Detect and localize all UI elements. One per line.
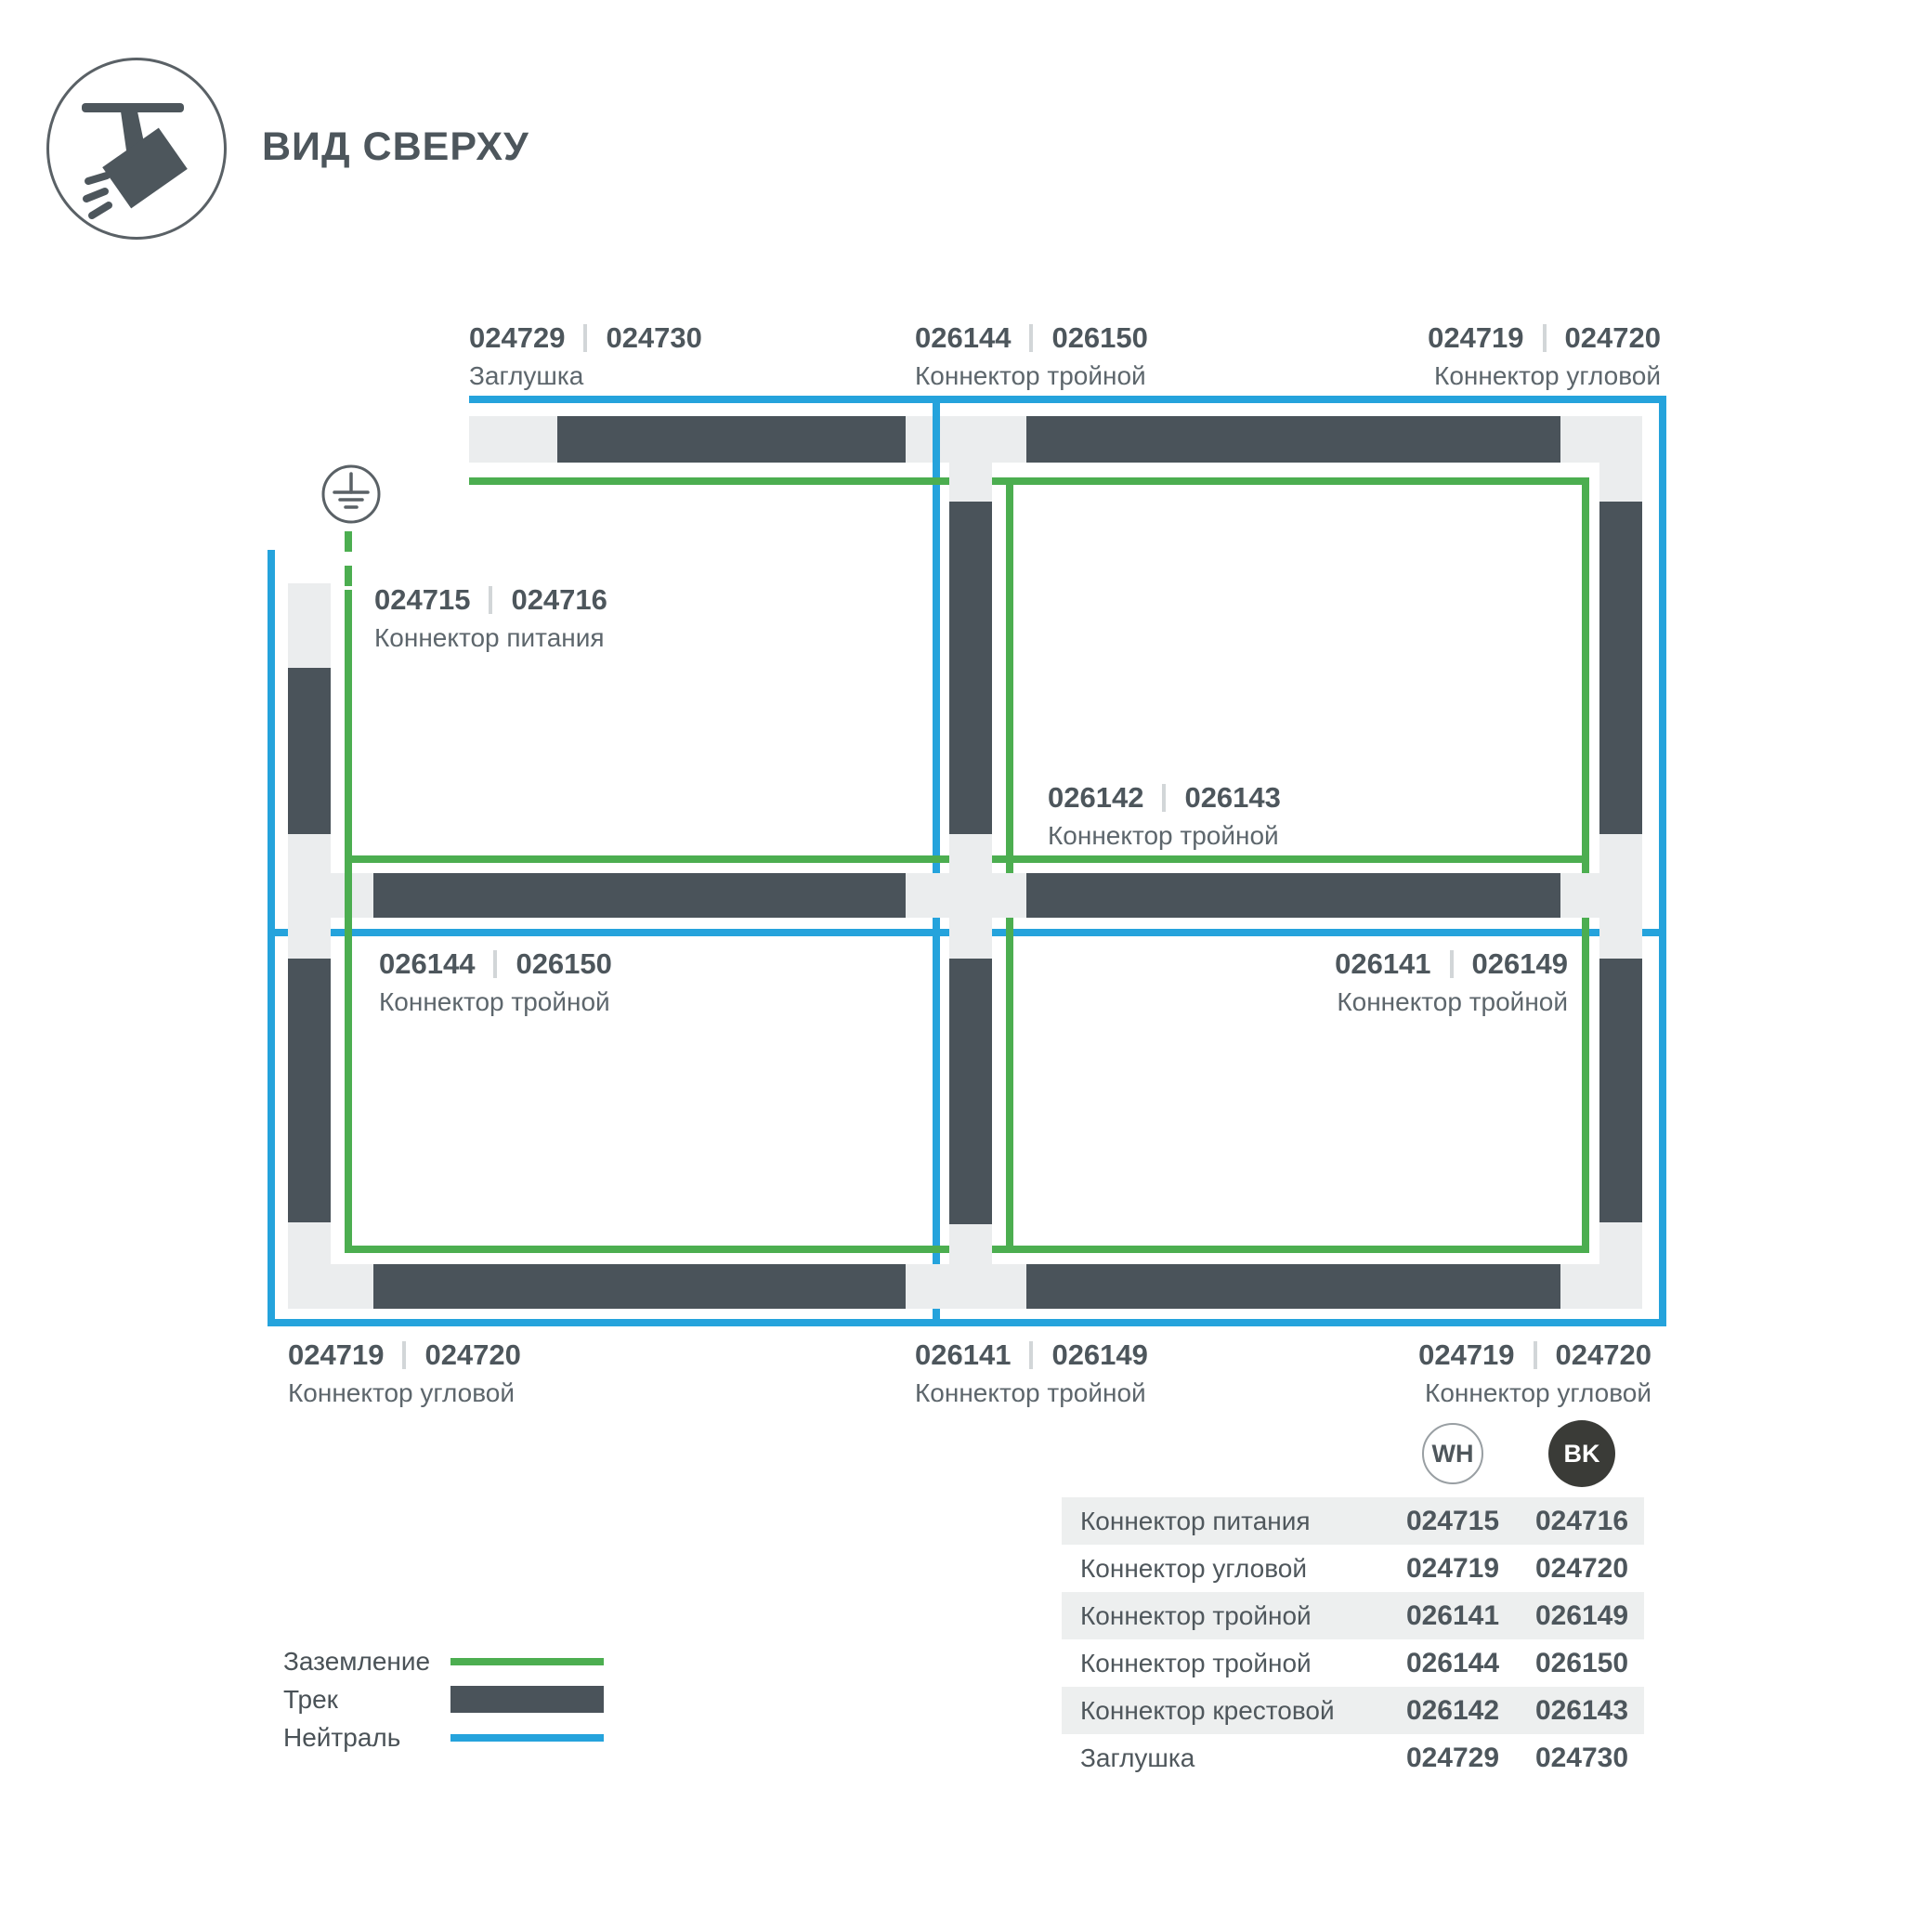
part-codes: 024719024720 [1418, 1338, 1651, 1372]
code-separator [1534, 1341, 1537, 1369]
legend-label-track: Трек [283, 1685, 450, 1715]
part-code-wh: 024719 [1428, 321, 1523, 355]
table-row: Коннектор угловой024719024720 [1062, 1545, 1644, 1592]
code-separator [1450, 950, 1454, 978]
color-badge-white-label: WH [1432, 1440, 1474, 1469]
table-cell-bk-code: 024730 [1531, 1743, 1633, 1774]
table-cell-bk-code: 026149 [1531, 1600, 1633, 1632]
part-label-triple-bottom: 026141026149Коннектор тройной [915, 1338, 1148, 1408]
table-row: Заглушка024729024730 [1062, 1734, 1644, 1782]
track-rail-right [1599, 416, 1642, 1309]
track-segment [373, 873, 906, 918]
part-code-wh: 026144 [379, 947, 475, 981]
table-cell-wh-code: 024715 [1402, 1506, 1504, 1537]
part-codes: 024729024730 [469, 321, 702, 355]
ground-wire-middle-vertical [1006, 477, 1013, 1253]
part-code-bk: 024720 [424, 1338, 520, 1372]
table-cell-wh-code: 024729 [1402, 1743, 1504, 1774]
table-cell-wh-code: 026141 [1402, 1600, 1504, 1632]
table-cell-wh-code: 024719 [1402, 1553, 1504, 1585]
part-code-wh: 024719 [288, 1338, 384, 1372]
part-code-wh: 026144 [915, 321, 1011, 355]
part-code-wh: 024719 [1418, 1338, 1514, 1372]
part-caption: Коннектор тройной [915, 1378, 1148, 1408]
part-label-cap-top: 024729024730Заглушка [469, 321, 702, 391]
part-code-wh: 024729 [469, 321, 565, 355]
legend-row-neutral: Нейтраль [283, 1718, 608, 1756]
part-code-bk: 026149 [1051, 1338, 1147, 1372]
neutral-line-swatch [450, 1734, 604, 1742]
track-rail-left [288, 583, 331, 1309]
part-codes: 024719024720 [288, 1338, 521, 1372]
ground-wire-top [469, 477, 1589, 485]
table-cell-bk-code: 024720 [1531, 1553, 1633, 1585]
part-label-triple-top: 026144026150Коннектор тройной [915, 321, 1148, 391]
part-caption: Коннектор питания [374, 623, 607, 653]
part-label-cross-center: 026142026143Коннектор тройной [1048, 781, 1281, 851]
legend-row-track: Трек [283, 1680, 608, 1718]
legend-swatch-ground [450, 1658, 604, 1665]
neutral-wire-top [469, 396, 1666, 403]
legend-row-ground: Заземление [283, 1642, 608, 1680]
table-cell-bk-code: 024716 [1531, 1506, 1633, 1537]
table-row: Коннектор тройной026141026149 [1062, 1592, 1644, 1639]
part-code-wh: 026142 [1048, 781, 1143, 815]
part-codes: 024719024720 [1428, 321, 1661, 355]
part-codes: 026142026143 [1048, 781, 1281, 815]
code-separator [1029, 324, 1033, 352]
track-segment [949, 959, 992, 1224]
ground-wire-dashed-feed [345, 531, 352, 589]
table-cell-wh-code: 026142 [1402, 1695, 1504, 1727]
part-caption: Коннектор тройной [915, 361, 1148, 391]
track-segment [949, 502, 992, 834]
part-code-bk: 024730 [606, 321, 701, 355]
part-label-triple-mid-left: 026144026150Коннектор тройной [379, 947, 612, 1017]
part-code-bk: 026150 [1051, 321, 1147, 355]
part-code-wh: 026141 [915, 1338, 1011, 1372]
code-separator [1162, 784, 1166, 812]
table-cell-name: Коннектор питания [1062, 1507, 1311, 1536]
legend-label-ground: Заземление [283, 1647, 450, 1677]
part-label-power: 024715024716Коннектор питания [374, 583, 607, 653]
ground-wire-left [345, 590, 352, 1253]
color-badge-white: WH [1422, 1423, 1483, 1484]
part-codes: 026141026149 [1335, 947, 1568, 981]
color-badge-black: BK [1548, 1420, 1615, 1487]
part-caption: Коннектор тройной [379, 987, 612, 1017]
table-cell-wh-code: 026144 [1402, 1648, 1504, 1679]
track-segment [1599, 959, 1642, 1222]
part-code-bk: 026149 [1472, 947, 1568, 981]
part-caption: Коннектор тройной [1048, 821, 1281, 851]
track-spotlight-icon [46, 58, 227, 240]
table-row: Коннектор крестовой026142026143 [1062, 1687, 1644, 1734]
part-label-corner-bottom-right: 024719024720Коннектор угловой [1418, 1338, 1651, 1408]
track-segment [1026, 1264, 1560, 1309]
part-codes: 026141026149 [915, 1338, 1148, 1372]
table-cell-name: Коннектор угловой [1062, 1554, 1307, 1584]
table-cell-name: Коннектор крестовой [1062, 1696, 1335, 1726]
part-label-corner-bottom-left: 024719024720Коннектор угловой [288, 1338, 521, 1408]
track-segment [373, 1264, 906, 1309]
code-separator [583, 324, 587, 352]
table-cell-name: Заглушка [1062, 1743, 1194, 1773]
ground-line-swatch [450, 1658, 604, 1665]
part-codes: 026144026150 [915, 321, 1148, 355]
legend-swatch-track [450, 1686, 604, 1713]
code-separator [1543, 324, 1547, 352]
ground-wire-right [1582, 477, 1589, 1253]
code-separator [493, 950, 497, 978]
code-separator [402, 1341, 406, 1369]
part-caption: Коннектор тройной [1335, 987, 1568, 1017]
legend-label-neutral: Нейтраль [283, 1723, 450, 1753]
track-rail-top [469, 416, 1642, 463]
table-row: Коннектор питания024715024716 [1062, 1497, 1644, 1545]
neutral-wire-right [1659, 396, 1666, 1326]
part-caption: Коннектор угловой [288, 1378, 521, 1408]
part-codes: 026144026150 [379, 947, 612, 981]
page-title: ВИД СВЕРХУ [262, 124, 529, 170]
table-row: Коннектор тройной026144026150 [1062, 1639, 1644, 1687]
track-segment [557, 416, 906, 463]
track-segment [1026, 873, 1560, 918]
legend-swatch-neutral [450, 1734, 604, 1742]
track-segment [288, 668, 331, 834]
track-segment [1026, 416, 1560, 463]
table-cell-bk-code: 026150 [1531, 1648, 1633, 1679]
part-code-bk: 026150 [516, 947, 611, 981]
part-caption: Коннектор угловой [1428, 361, 1661, 391]
track-segment [1599, 502, 1642, 834]
track-rail-center-vertical [949, 416, 992, 1309]
page: ВИД СВЕРХУ [0, 0, 1932, 1932]
part-label-corner-top-right: 024719024720Коннектор угловой [1428, 321, 1661, 391]
neutral-wire-bottom [268, 1319, 1666, 1326]
part-code-wh: 026141 [1335, 947, 1430, 981]
part-code-bk: 024720 [1556, 1338, 1651, 1372]
ground-earth-icon [319, 462, 384, 527]
neutral-wire-top-tee-overlay [933, 416, 940, 463]
neutral-wire-left [268, 550, 275, 1326]
code-separator [1029, 1341, 1033, 1369]
part-code-wh: 024715 [374, 583, 470, 617]
part-code-bk: 024716 [511, 583, 607, 617]
table-cell-name: Коннектор тройной [1062, 1601, 1312, 1631]
part-caption: Коннектор угловой [1418, 1378, 1651, 1408]
part-label-triple-mid-right: 026141026149Коннектор тройной [1335, 947, 1568, 1017]
track-bar-swatch [450, 1686, 604, 1713]
table-cell-name: Коннектор тройной [1062, 1649, 1312, 1678]
part-code-bk: 026143 [1184, 781, 1280, 815]
code-separator [489, 586, 492, 614]
color-badge-black-label: BK [1564, 1440, 1600, 1469]
part-caption: Заглушка [469, 361, 702, 391]
part-codes: 024715024716 [374, 583, 607, 617]
table-cell-bk-code: 026143 [1531, 1695, 1633, 1727]
legend: ЗаземлениеТрекНейтраль [283, 1642, 608, 1756]
track-segment [288, 959, 331, 1222]
parts-table: Коннектор питания024715024716Коннектор у… [1062, 1497, 1644, 1782]
part-code-bk: 024720 [1565, 321, 1661, 355]
